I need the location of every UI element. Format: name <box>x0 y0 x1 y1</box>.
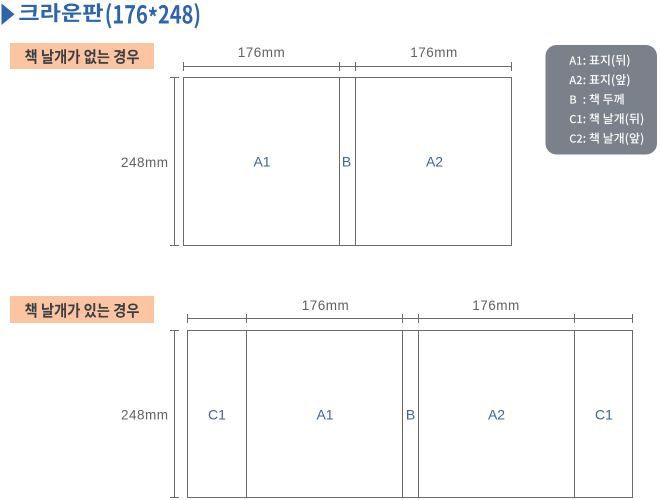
svg-text:B: B <box>406 407 415 423</box>
svg-text:248mm: 248mm <box>121 155 169 170</box>
svg-text:248mm: 248mm <box>121 408 169 423</box>
svg-text:176mm: 176mm <box>410 45 458 60</box>
svg-text:176mm: 176mm <box>302 298 350 313</box>
svg-text:176mm: 176mm <box>472 298 520 313</box>
svg-text:A2: A2 <box>488 407 505 423</box>
svg-text:A1: A1 <box>253 154 270 170</box>
svg-text:A2: A2 <box>426 154 443 170</box>
svg-text:C1: C1 <box>595 407 613 423</box>
svg-text:176mm: 176mm <box>238 45 286 60</box>
svg-text:B: B <box>342 154 351 170</box>
svg-text:A1: A1 <box>316 407 333 423</box>
svg-text:C1: C1 <box>208 407 226 423</box>
